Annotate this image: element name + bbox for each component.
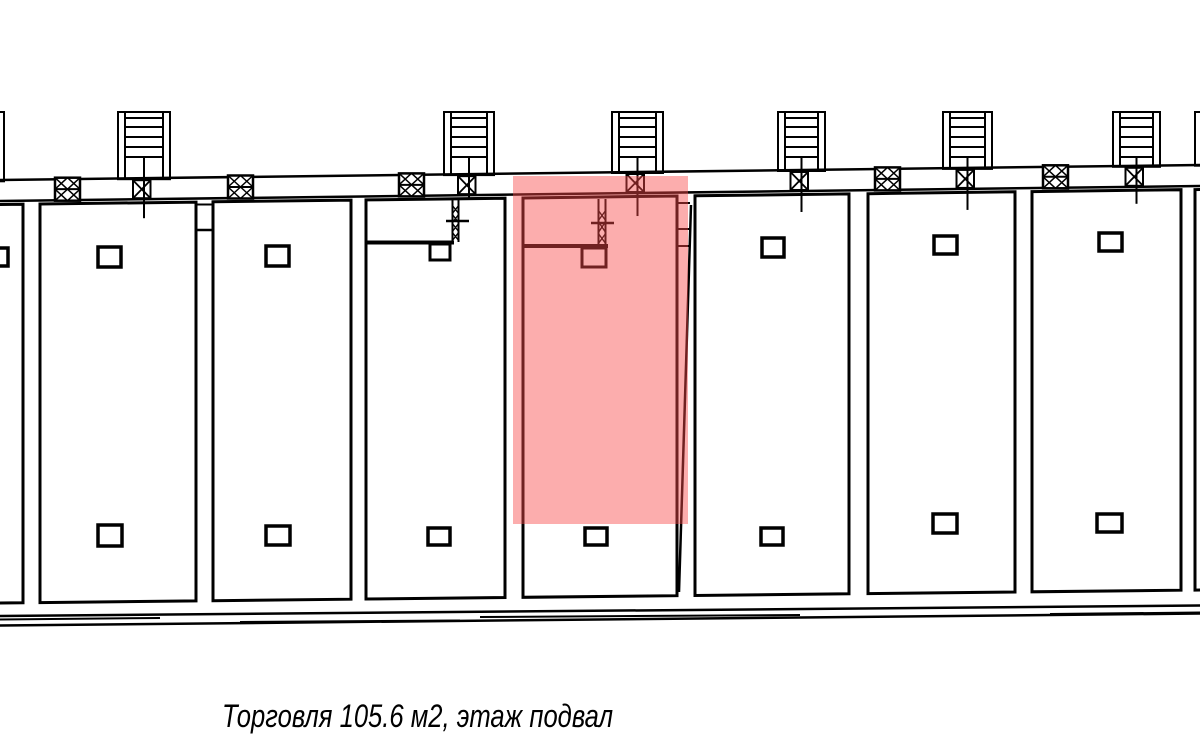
column — [761, 528, 783, 545]
room-outline-6 — [695, 194, 849, 596]
interior-detail-line — [480, 615, 800, 617]
column — [98, 525, 122, 546]
column — [934, 236, 957, 254]
column — [1099, 233, 1122, 251]
column — [428, 528, 450, 545]
column — [266, 526, 290, 545]
room-outline-9 — [1195, 189, 1200, 590]
staircase-8 — [1195, 112, 1200, 166]
interior-detail-line — [0, 618, 160, 620]
floor-plan — [0, 0, 1200, 745]
column — [1097, 514, 1122, 532]
column — [762, 238, 784, 257]
staircase-1 — [0, 112, 4, 181]
column — [98, 247, 121, 267]
interior-detail-box — [430, 244, 450, 260]
column — [266, 246, 289, 266]
floor-plan-canvas: Торговля 105.6 м2, этаж подвал — [0, 0, 1200, 745]
column — [0, 248, 8, 266]
room-outline-1 — [0, 204, 23, 603]
column — [933, 514, 957, 533]
room-outline-3 — [213, 200, 351, 601]
column — [585, 528, 607, 545]
highlighted-unit-overlay[interactable] — [513, 176, 688, 524]
unit-caption: Торговля 105.6 м2, этаж подвал — [222, 699, 613, 734]
room-outline-2 — [40, 202, 196, 602]
